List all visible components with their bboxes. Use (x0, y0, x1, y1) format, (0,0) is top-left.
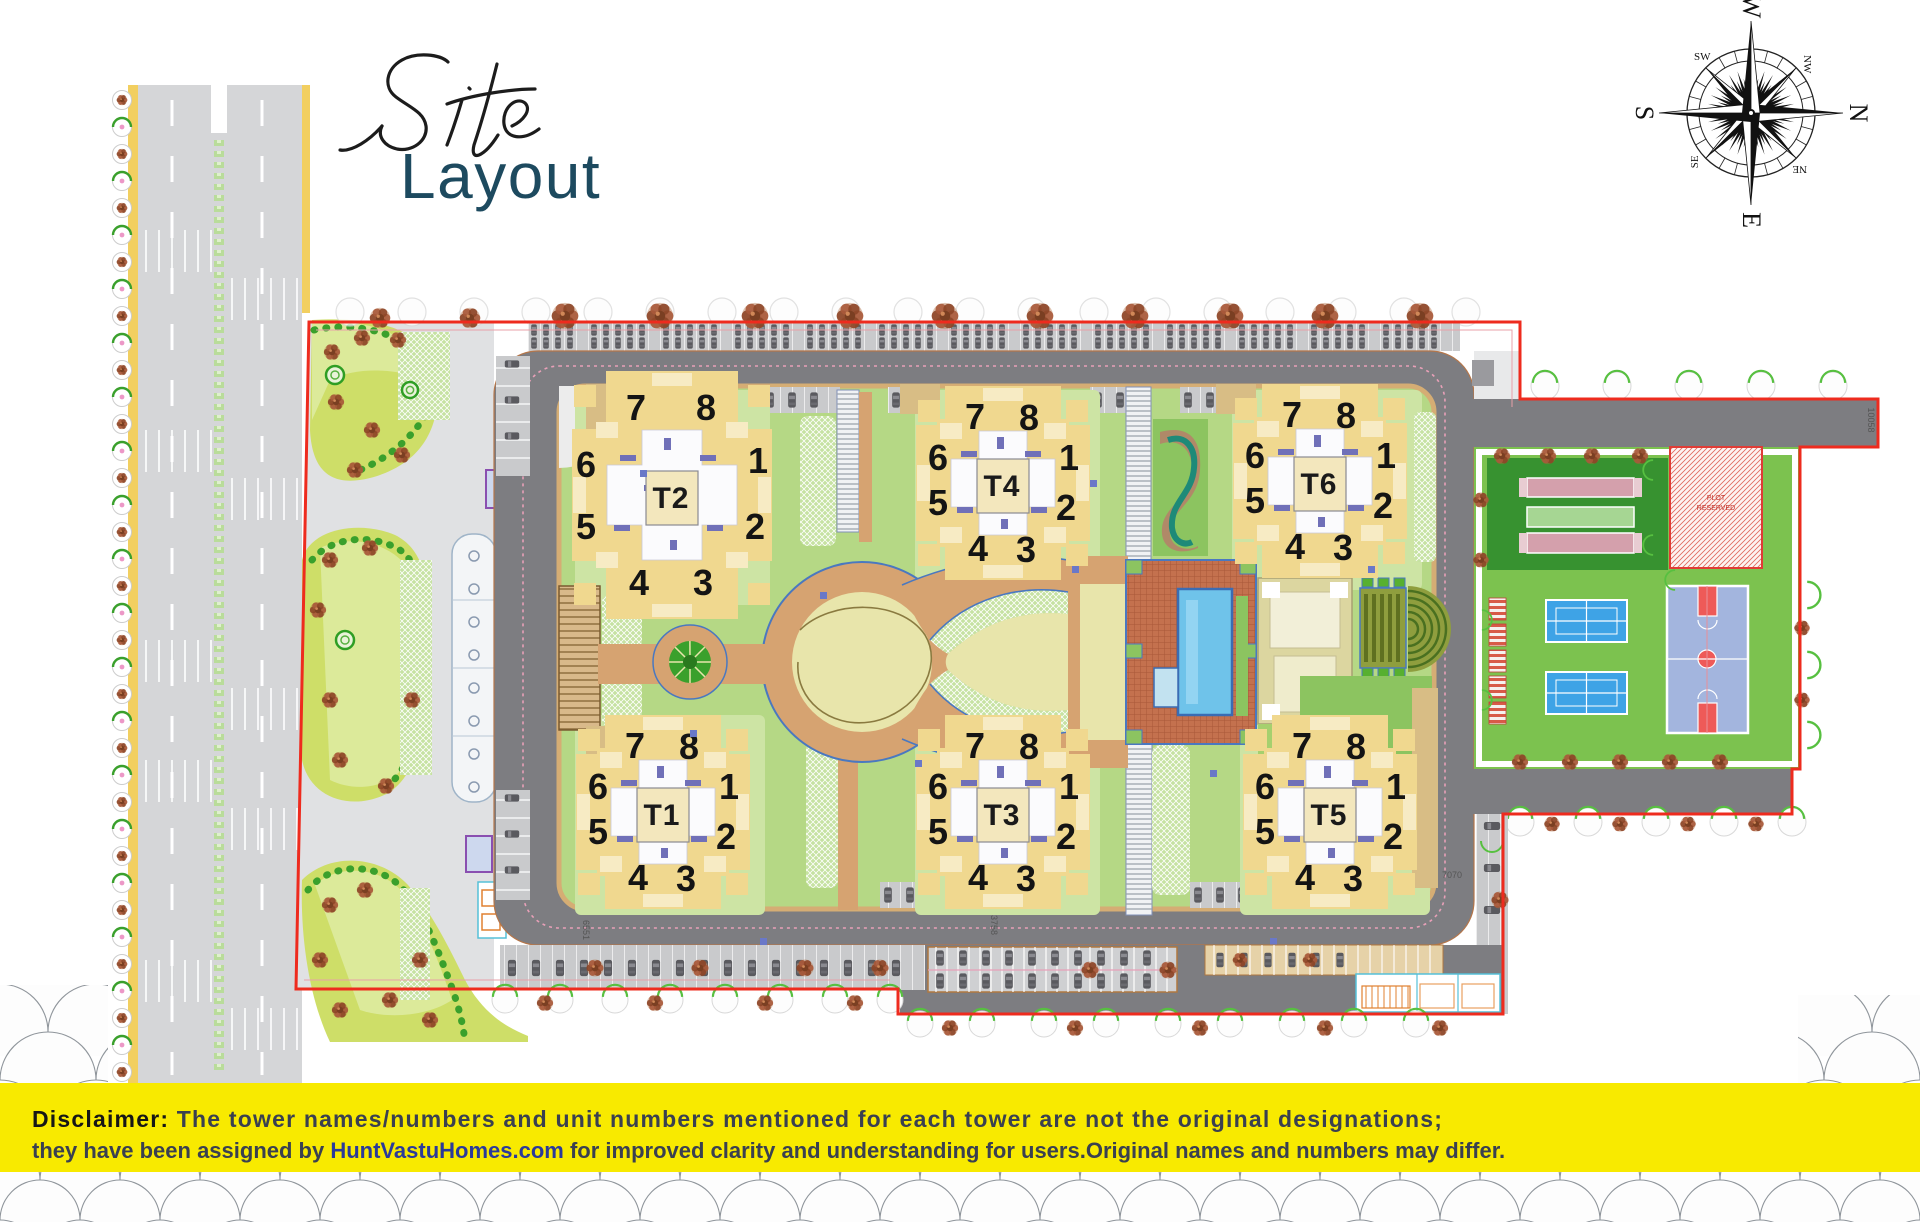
svg-text:RESERVED: RESERVED (1697, 505, 1735, 512)
svg-text:4: 4 (629, 562, 649, 603)
svg-text:S: S (1630, 106, 1659, 120)
svg-text:2: 2 (745, 506, 765, 547)
svg-text:7: 7 (1292, 725, 1312, 766)
svg-text:they have been assigned by Hun: they have been assigned by HuntVastuHome… (32, 1138, 1505, 1163)
svg-text:T5: T5 (1310, 799, 1347, 832)
svg-text:6: 6 (1245, 435, 1265, 476)
svg-text:SW: SW (1694, 51, 1711, 63)
svg-text:N: N (1844, 104, 1873, 123)
svg-text:4: 4 (1285, 526, 1305, 567)
svg-text:3: 3 (1016, 858, 1036, 899)
svg-text:3: 3 (693, 562, 713, 603)
svg-text:T1: T1 (643, 799, 680, 832)
svg-text:1: 1 (1386, 766, 1406, 807)
svg-text:5: 5 (588, 811, 608, 852)
svg-text:10058: 10058 (1866, 407, 1876, 432)
svg-text:W: W (1737, 0, 1766, 19)
svg-text:5: 5 (928, 482, 948, 523)
svg-text:E: E (1737, 212, 1766, 228)
svg-text:2: 2 (1373, 485, 1393, 526)
svg-text:4: 4 (968, 528, 988, 569)
svg-text:T6: T6 (1300, 468, 1337, 501)
svg-text:6: 6 (928, 766, 948, 807)
svg-text:4: 4 (968, 857, 988, 898)
svg-text:1: 1 (719, 766, 739, 807)
svg-text:6551: 6551 (581, 920, 591, 940)
svg-text:5: 5 (576, 506, 596, 547)
svg-text:8: 8 (1346, 726, 1366, 767)
svg-text:5: 5 (1255, 811, 1275, 852)
svg-text:8: 8 (1019, 726, 1039, 767)
svg-text:8: 8 (1019, 397, 1039, 438)
svg-text:Disclaimer: The tower names/nu: Disclaimer: The tower names/numbers and … (32, 1106, 1443, 1132)
svg-text:3: 3 (1343, 858, 1363, 899)
svg-text:3: 3 (1016, 529, 1036, 570)
svg-text:5: 5 (1245, 480, 1265, 521)
svg-text:NE: NE (1792, 163, 1807, 175)
svg-text:2: 2 (716, 816, 736, 857)
svg-text:SE: SE (1689, 155, 1701, 168)
svg-text:7: 7 (965, 725, 985, 766)
svg-text:1: 1 (1059, 766, 1079, 807)
svg-text:6: 6 (576, 444, 596, 485)
svg-text:6: 6 (928, 437, 948, 478)
svg-text:4: 4 (628, 857, 648, 898)
svg-text:PLOT: PLOT (1707, 495, 1726, 502)
svg-text:1: 1 (748, 440, 768, 481)
svg-text:6: 6 (1255, 766, 1275, 807)
svg-text:7: 7 (1282, 394, 1302, 435)
svg-text:3: 3 (1333, 527, 1353, 568)
svg-text:5: 5 (928, 811, 948, 852)
svg-text:7: 7 (965, 396, 985, 437)
svg-text:8: 8 (1336, 395, 1356, 436)
svg-text:NW: NW (1801, 55, 1813, 74)
svg-text:T4: T4 (983, 470, 1020, 503)
svg-text:T3: T3 (983, 799, 1020, 832)
svg-text:7070: 7070 (1442, 870, 1462, 880)
svg-text:3: 3 (676, 858, 696, 899)
svg-text:4: 4 (1295, 857, 1315, 898)
svg-text:2: 2 (1056, 816, 1076, 857)
svg-text:8: 8 (696, 387, 716, 428)
svg-text:T2: T2 (652, 482, 689, 515)
svg-text:6: 6 (588, 766, 608, 807)
svg-text:Layout: Layout (400, 140, 601, 212)
svg-text:7: 7 (626, 387, 646, 428)
svg-text:1: 1 (1376, 435, 1396, 476)
svg-text:3758: 3758 (989, 915, 999, 935)
svg-text:2: 2 (1383, 816, 1403, 857)
svg-text:7: 7 (625, 725, 645, 766)
svg-text:2: 2 (1056, 487, 1076, 528)
svg-text:1: 1 (1059, 437, 1079, 478)
